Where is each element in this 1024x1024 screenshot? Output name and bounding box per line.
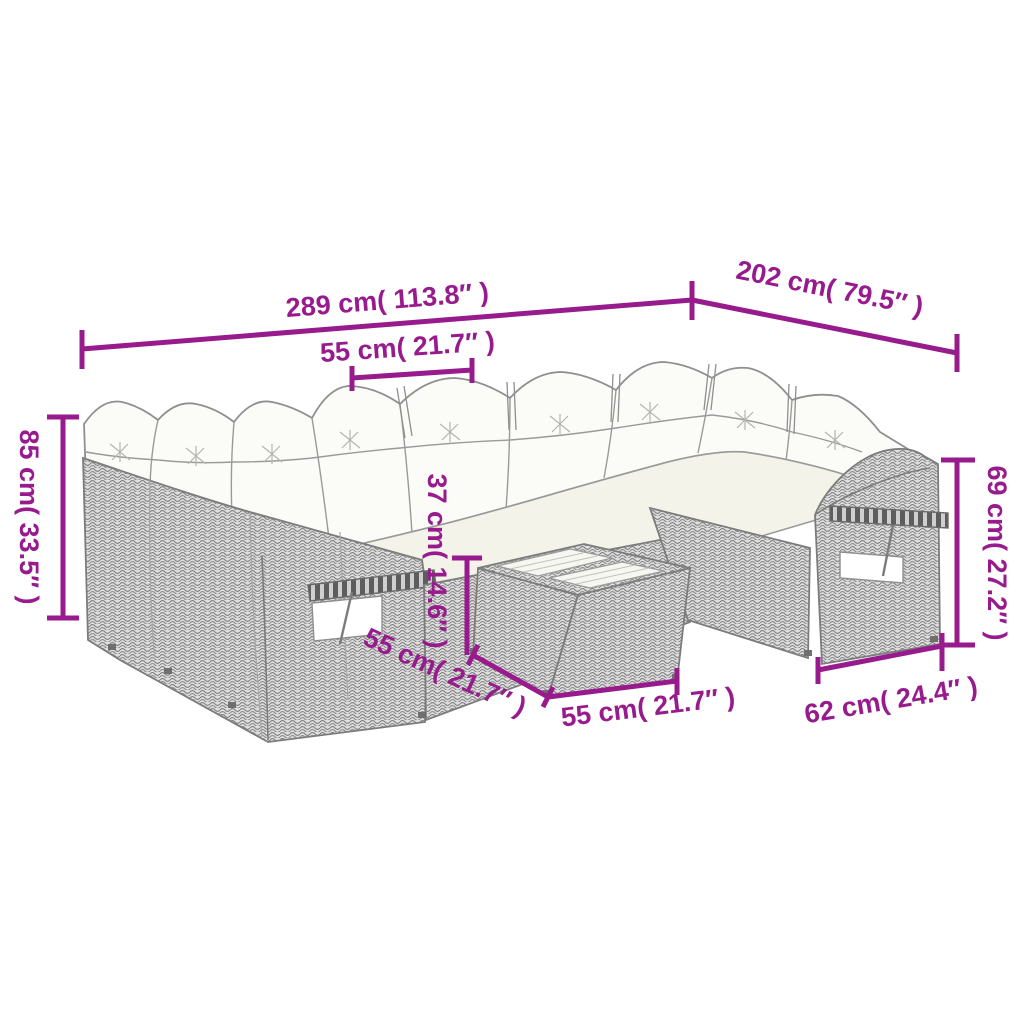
- dim-armrest-height-line: [941, 460, 975, 645]
- dim-seat-width-label: 55 cm( 21.7″ ): [319, 326, 496, 368]
- sofa-dimension-diagram: 289 cm( 113.8″ ) 202 cm( 79.5″ ) 55 cm( …: [0, 0, 1024, 1024]
- dim-overall-height-label: 85 cm( 33.5″ ): [14, 429, 44, 604]
- sofa-illustration: [83, 362, 948, 742]
- dim-armrest-height-label: 69 cm( 27.2″ ): [982, 465, 1012, 640]
- right-tray-panel: [840, 552, 903, 583]
- dim-seat-depth-label: 62 cm( 24.4″ ): [802, 671, 980, 729]
- dim-overall-height-line: [47, 417, 79, 618]
- dim-table-height-label: 37 cm( 14.6″ ): [422, 473, 452, 648]
- diagram-canvas: 289 cm( 113.8″ ) 202 cm( 79.5″ ) 55 cm( …: [0, 0, 1024, 1024]
